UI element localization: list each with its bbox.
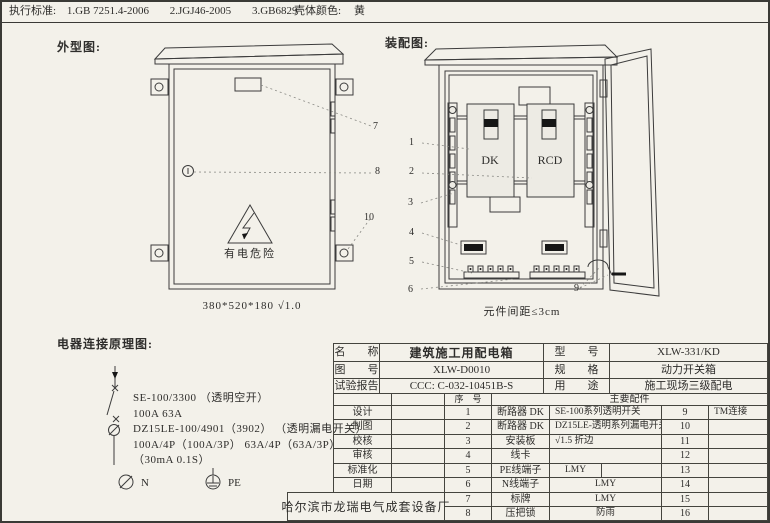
cable-clamps	[461, 241, 567, 254]
part-name: 断路器 DK	[492, 420, 550, 435]
standards-label: 执行标准:	[9, 2, 56, 21]
dk-label: DK	[481, 153, 499, 167]
part-spec: LMY	[550, 464, 602, 478]
schematic-spec-line: （30mA 0.1S）	[133, 453, 367, 469]
sign-row-check: 校核	[334, 435, 392, 449]
callout-2: 2	[409, 167, 414, 177]
report-value-cell: CCC: C-032-10451B-S	[380, 379, 544, 394]
sign-row-design: 设计	[334, 406, 392, 420]
callout-7: 7	[373, 122, 378, 132]
schematic-spec-text: SE-100/3300 （透明空开） 100A 63A DZ15LE-100/4…	[133, 391, 367, 469]
door-lock	[183, 166, 194, 177]
callout-1: 1	[409, 138, 414, 148]
leader-lines	[194, 85, 373, 249]
part-spec: √1.5 折边	[550, 435, 662, 449]
sign-value-cell	[392, 464, 445, 478]
standards-bar: 执行标准: 1.GB 7251.4-2006 2.JGJ46-2005 3.GB…	[2, 2, 768, 23]
sign-value-cell	[392, 478, 445, 493]
terminal-strip-right	[530, 266, 585, 278]
callout-6: 6	[408, 285, 413, 295]
sign-value-cell	[392, 435, 445, 449]
seq-header-cell: 序 号	[445, 394, 492, 406]
n-label: N	[141, 477, 149, 489]
empty-cell	[392, 394, 445, 406]
callout-10: 10	[364, 213, 374, 223]
callout-9: 9	[574, 284, 579, 294]
spacing-note: 元件间距≤3cm	[457, 303, 587, 319]
part-spec	[550, 449, 662, 464]
part-seq2: 10	[662, 420, 709, 435]
sign-value-cell	[392, 406, 445, 420]
drawing-no-label-cell: 图 号	[334, 362, 380, 379]
report-label-cell: 试验报告	[334, 379, 380, 394]
schematic-spec-line: 100A 63A	[133, 407, 367, 423]
assembly-drawing: DK RCD	[407, 32, 668, 324]
part-name: 断路器 DK	[492, 406, 550, 420]
outline-drawing: 有电危险	[142, 32, 397, 324]
spec-value-cell: 动力开关箱	[610, 362, 767, 379]
dk-breaker: DK	[467, 104, 514, 197]
busbar-box-top	[519, 87, 550, 105]
warning-triangle-icon	[228, 205, 272, 243]
sign-row-date: 日期	[334, 478, 392, 493]
hinge-mark	[331, 200, 335, 214]
callout-4: 4	[409, 228, 414, 238]
part-seq: 2	[445, 420, 492, 435]
part-seq2: 12	[662, 449, 709, 464]
shell-color-value: 黄	[354, 2, 365, 21]
breaker-symbol	[107, 366, 118, 415]
schematic-spec-line: DZ15LE-100/4901（3902） （透明漏电开关）	[133, 422, 367, 438]
sign-row-standardize: 标准化	[334, 464, 392, 478]
part-seq: 4	[445, 449, 492, 464]
part-spec2	[709, 478, 767, 493]
rain-hood	[155, 44, 343, 64]
cabinet-door	[600, 49, 659, 296]
part-seq2: 14	[662, 478, 709, 493]
spec-label-cell: 规 格	[544, 362, 610, 379]
callout-8: 8	[375, 167, 380, 177]
part-spec2	[709, 493, 767, 507]
part-spec: LMY	[550, 478, 662, 493]
pe-label: PE	[228, 477, 241, 489]
empty-cell	[602, 464, 662, 478]
part-seq: 1	[445, 406, 492, 420]
part-seq2: 13	[662, 464, 709, 478]
schematic-spec-line: SE-100/3300 （透明空开）	[133, 391, 367, 407]
stamp-box: 哈尔滨市龙瑞电气成套设备厂	[287, 492, 445, 521]
part-spec2	[709, 464, 767, 478]
part-name: N线端子	[492, 478, 550, 493]
hinge-mark	[331, 217, 335, 231]
dimension-note: 380*520*180 √1.0	[162, 300, 342, 312]
part-seq: 5	[445, 464, 492, 478]
name-label-cell: 名 称	[334, 344, 380, 362]
rcd-symbol	[109, 416, 120, 465]
part-name: 压把锁	[492, 507, 550, 520]
part-spec: DZ15LE-透明系列漏电开关	[550, 420, 662, 435]
standard-item-2: 2.JGJ46-2005	[170, 2, 231, 21]
hinge-mark	[331, 119, 335, 133]
parts-header-cell: 主要配件	[492, 394, 767, 406]
part-seq2: 11	[662, 435, 709, 449]
empty-cell	[334, 394, 392, 406]
part-seq: 7	[445, 493, 492, 507]
part-seq: 8	[445, 507, 492, 520]
part-spec: SE-100系列透明开关	[550, 406, 662, 420]
part-seq: 6	[445, 478, 492, 493]
part-name: 标牌	[492, 493, 550, 507]
cabinet-body	[439, 65, 603, 289]
nameplate	[235, 78, 261, 91]
warning-text: 有电危险	[224, 246, 276, 260]
drawing-sheet: 执行标准: 1.GB 7251.4-2006 2.JGJ46-2005 3.GB…	[0, 0, 770, 523]
terminal-strip-left	[464, 266, 519, 278]
rcd-breaker: RCD	[527, 104, 574, 197]
part-seq2: 9	[662, 406, 709, 420]
use-value-cell: 施工现场三级配电	[610, 379, 767, 394]
standard-item-1: 1.GB 7251.4-2006	[67, 2, 149, 21]
name-value-cell: 建筑施工用配电箱	[380, 344, 544, 362]
schematic-section-title: 电器连接原理图:	[57, 335, 153, 352]
factory-name: 哈尔滨市龙瑞电气成套设备厂	[282, 498, 451, 515]
standard-item-3: 3.GB6829	[252, 2, 298, 21]
part-spec: 防雨	[550, 507, 662, 520]
model-value-cell: XLW-331/KD	[610, 344, 767, 362]
pe-symbol-icon	[206, 468, 220, 489]
part-seq2: 15	[662, 493, 709, 507]
callout-3: 3	[408, 198, 413, 208]
part-name: PE线端子	[492, 464, 550, 478]
part-name: 安装板	[492, 435, 550, 449]
use-label-cell: 用 途	[544, 379, 610, 394]
drawing-no-value-cell: XLW-D0010	[380, 362, 544, 379]
part-seq2: 16	[662, 507, 709, 520]
sign-value-cell	[392, 420, 445, 435]
part-seq: 3	[445, 435, 492, 449]
busbar-box-bottom	[490, 197, 520, 212]
part-spec2	[709, 435, 767, 449]
model-label-cell: 型 号	[544, 344, 610, 362]
sign-value-cell	[392, 449, 445, 464]
part-spec2	[709, 449, 767, 464]
part-spec: LMY	[550, 493, 662, 507]
part-spec2	[709, 507, 767, 520]
callout-5: 5	[409, 257, 414, 267]
hinge-mark	[331, 102, 335, 116]
rain-hood	[425, 45, 617, 65]
schematic-spec-line: 100A/4P（100A/3P） 63A/4P（63A/3P）	[133, 438, 367, 454]
n-symbol-icon	[119, 475, 133, 489]
shell-color-label: 壳体颜色:	[294, 2, 341, 21]
part-spec2	[709, 420, 767, 435]
part-name: 线卡	[492, 449, 550, 464]
mounting-tabs	[151, 79, 353, 261]
earth-wire	[588, 260, 626, 275]
sign-row-drafting: 制图	[334, 420, 392, 435]
outline-section-title: 外型图:	[57, 38, 101, 55]
rcd-label: RCD	[538, 153, 563, 167]
sign-row-review: 审核	[334, 449, 392, 464]
part-spec2: TM连接	[709, 406, 767, 420]
